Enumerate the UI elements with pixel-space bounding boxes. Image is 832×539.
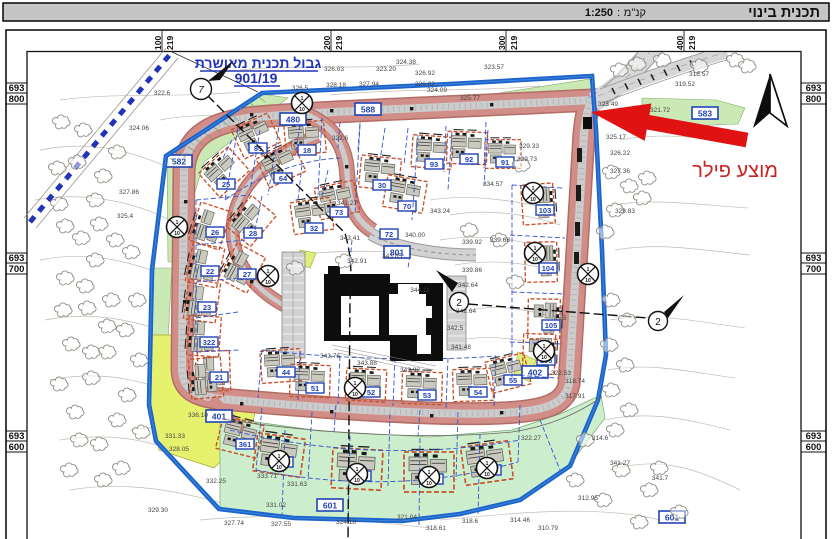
svg-text:333.71: 333.71 (257, 473, 277, 480)
svg-text:693: 693 (9, 431, 25, 442)
svg-text:401: 401 (212, 412, 226, 422)
svg-text:מוצע פילר: מוצע פילר (692, 160, 778, 182)
svg-text:693: 693 (9, 253, 25, 264)
svg-text:27: 27 (243, 270, 251, 279)
svg-text:326.22: 326.22 (610, 150, 630, 157)
svg-text:322.6: 322.6 (332, 135, 349, 142)
svg-text:480: 480 (286, 115, 300, 125)
svg-text:54: 54 (474, 388, 483, 397)
svg-text:93: 93 (430, 160, 438, 169)
svg-text:326.03: 326.03 (324, 66, 344, 73)
svg-text:73: 73 (335, 208, 343, 217)
svg-text:332.25: 332.25 (206, 478, 226, 485)
svg-text:55: 55 (509, 376, 517, 385)
svg-text:314.6: 314.6 (592, 435, 609, 442)
svg-text:329.33: 329.33 (519, 143, 539, 150)
svg-text:342.64: 342.64 (458, 282, 478, 289)
svg-text:328.05: 328.05 (169, 446, 189, 453)
svg-text:גבול תכנית מאושרת: גבול תכנית מאושרת (195, 55, 322, 71)
svg-text:343.05: 343.05 (382, 253, 402, 260)
svg-text:400: 400 (675, 36, 685, 50)
svg-text:339.92: 339.92 (462, 239, 482, 246)
svg-text:52: 52 (367, 388, 375, 397)
svg-text:343.92: 343.92 (400, 367, 420, 374)
svg-text:327.55: 327.55 (271, 521, 291, 528)
svg-text:324.09: 324.09 (427, 87, 447, 94)
svg-text:600: 600 (806, 442, 822, 453)
svg-text:334.57: 334.57 (483, 181, 503, 188)
svg-text:26: 26 (211, 228, 219, 237)
svg-text:23: 23 (203, 303, 211, 312)
svg-text:700: 700 (9, 264, 25, 275)
svg-text:343.41: 343.41 (340, 235, 360, 242)
svg-text:18: 18 (303, 146, 311, 155)
svg-text:800: 800 (806, 94, 822, 105)
svg-text:342.91: 342.91 (347, 258, 367, 265)
svg-text:341.27: 341.27 (337, 200, 357, 207)
svg-text:219: 219 (334, 36, 344, 50)
svg-text:91: 91 (501, 158, 509, 167)
svg-text:7: 7 (198, 85, 204, 96)
svg-text:800: 800 (9, 94, 25, 105)
svg-text:361: 361 (239, 440, 252, 449)
svg-text:326.5: 326.5 (292, 85, 309, 92)
svg-text:601: 601 (323, 501, 337, 511)
svg-text:329.73: 329.73 (517, 156, 537, 163)
svg-text:693: 693 (9, 83, 25, 94)
svg-text:100: 100 (153, 36, 163, 50)
svg-text:324.18: 324.18 (336, 519, 356, 526)
svg-text:1:250: 1:250 (585, 7, 613, 19)
svg-text:תכנית בינוי: תכנית בינוי (748, 5, 820, 21)
svg-text:323.20: 323.20 (376, 66, 396, 73)
svg-text:28: 28 (249, 229, 257, 238)
svg-text:323.57: 323.57 (484, 64, 504, 71)
svg-text:325.17: 325.17 (606, 134, 626, 141)
svg-text:319.52: 319.52 (675, 81, 695, 88)
svg-text:325.4: 325.4 (117, 213, 134, 220)
svg-text:339.68: 339.68 (490, 237, 510, 244)
svg-text:318.74: 318.74 (565, 378, 585, 385)
svg-text:329.30: 329.30 (148, 507, 168, 514)
svg-text:327.74: 327.74 (224, 520, 244, 527)
svg-text:72: 72 (385, 230, 393, 239)
svg-text:327.94: 327.94 (359, 81, 379, 88)
svg-text:30: 30 (378, 181, 386, 190)
svg-text:317.91: 317.91 (565, 393, 585, 400)
svg-text:219: 219 (687, 36, 697, 50)
svg-text:323.49: 323.49 (598, 101, 618, 108)
svg-text:327.86: 327.86 (119, 189, 139, 196)
svg-text:200: 200 (322, 36, 332, 50)
svg-text:318.61: 318.61 (426, 525, 446, 532)
svg-text:331.33: 331.33 (165, 433, 185, 440)
svg-text:331.63: 331.63 (287, 481, 307, 488)
svg-text:321.72: 321.72 (650, 107, 670, 114)
svg-text:693: 693 (806, 83, 822, 94)
svg-text:300: 300 (497, 36, 507, 50)
svg-text:3.65: 3.65 (554, 315, 567, 322)
svg-text:324.06: 324.06 (129, 125, 149, 132)
svg-text:341.48: 341.48 (451, 344, 471, 351)
svg-text:328.18: 328.18 (326, 82, 346, 89)
svg-text:219: 219 (165, 36, 175, 50)
svg-text:326.92: 326.92 (415, 70, 435, 77)
svg-text:342.5: 342.5 (447, 325, 464, 332)
svg-text:219: 219 (509, 36, 519, 50)
svg-text:קנ"מ: קנ"מ (624, 7, 646, 19)
svg-text:318.6: 318.6 (462, 518, 479, 525)
svg-text:600: 600 (9, 442, 25, 453)
svg-text:322.27: 322.27 (521, 435, 541, 442)
svg-text:322.6: 322.6 (154, 90, 171, 97)
svg-text:329.83: 329.83 (615, 208, 635, 215)
svg-text:25: 25 (222, 180, 230, 189)
svg-text:103: 103 (539, 206, 552, 215)
svg-text:318.57: 318.57 (689, 71, 709, 78)
svg-text:92: 92 (465, 155, 473, 164)
svg-text:341.27: 341.27 (610, 460, 630, 467)
svg-text:53: 53 (423, 391, 431, 400)
svg-text:21: 21 (215, 373, 223, 382)
svg-text:901/19: 901/19 (235, 70, 278, 86)
svg-text:693: 693 (806, 253, 822, 264)
svg-text:314.46: 314.46 (510, 517, 530, 524)
svg-text:336.10: 336.10 (188, 412, 208, 419)
svg-text:331.02: 331.02 (266, 502, 286, 509)
svg-text::: : (617, 7, 620, 19)
svg-text:51: 51 (311, 384, 319, 393)
svg-text:325.77: 325.77 (460, 95, 480, 102)
svg-text:22: 22 (206, 267, 214, 276)
svg-text:312.95: 312.95 (578, 495, 598, 502)
svg-text:588: 588 (361, 105, 375, 115)
svg-text:324.38: 324.38 (396, 59, 416, 66)
svg-text:693: 693 (806, 431, 822, 442)
svg-text:343.76: 343.76 (320, 353, 340, 360)
svg-text:2: 2 (655, 317, 661, 328)
svg-text:583: 583 (698, 109, 712, 119)
svg-text:104: 104 (542, 264, 555, 273)
svg-text:343.24: 343.24 (430, 208, 450, 215)
svg-text:310.79: 310.79 (538, 525, 558, 532)
svg-text:44: 44 (282, 368, 291, 377)
svg-text:105: 105 (545, 321, 558, 330)
svg-text:322.53: 322.53 (551, 370, 571, 377)
svg-text:322: 322 (203, 338, 216, 347)
svg-text:342.64: 342.64 (456, 308, 476, 315)
svg-text:321.04: 321.04 (397, 514, 417, 521)
svg-text:70: 70 (403, 202, 411, 211)
svg-text:339.86: 339.86 (462, 267, 482, 274)
svg-text:340.00: 340.00 (405, 232, 425, 239)
svg-text:344.11: 344.11 (410, 287, 430, 294)
svg-text:32: 32 (310, 224, 318, 233)
svg-text:327.36: 327.36 (610, 168, 630, 175)
svg-text:700: 700 (806, 264, 822, 275)
svg-text:343.88: 343.88 (357, 360, 377, 367)
svg-text:341.7: 341.7 (652, 475, 669, 482)
